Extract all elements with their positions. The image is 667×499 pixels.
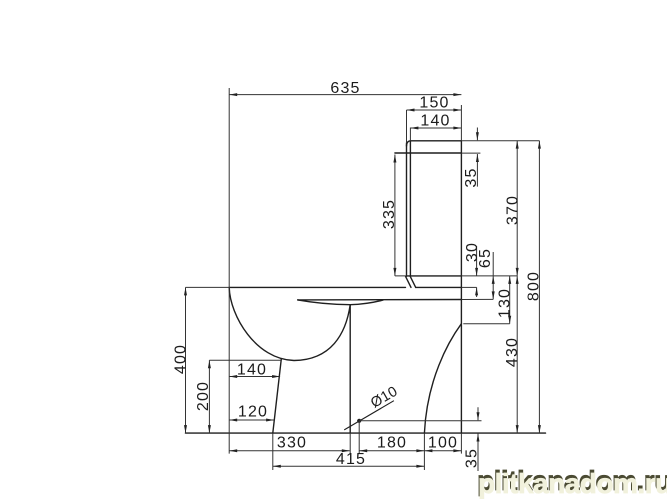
svg-text:130: 130 [496, 288, 513, 318]
svg-text:430: 430 [504, 337, 521, 367]
svg-text:120: 120 [238, 404, 268, 421]
svg-text:150: 150 [419, 95, 449, 112]
svg-text:635: 635 [330, 80, 360, 97]
svg-text:100: 100 [428, 435, 458, 452]
svg-text:335: 335 [381, 199, 398, 229]
svg-text:370: 370 [505, 195, 522, 225]
svg-text:400: 400 [172, 344, 189, 374]
svg-text:415: 415 [336, 451, 366, 468]
svg-text:800: 800 [525, 271, 542, 301]
svg-text:140: 140 [420, 113, 450, 130]
svg-text:140: 140 [237, 362, 267, 379]
svg-text:330: 330 [277, 435, 307, 452]
svg-text:35: 35 [463, 167, 480, 187]
svg-text:180: 180 [377, 435, 407, 452]
svg-text:200: 200 [195, 381, 212, 411]
svg-text:65: 65 [477, 248, 494, 268]
